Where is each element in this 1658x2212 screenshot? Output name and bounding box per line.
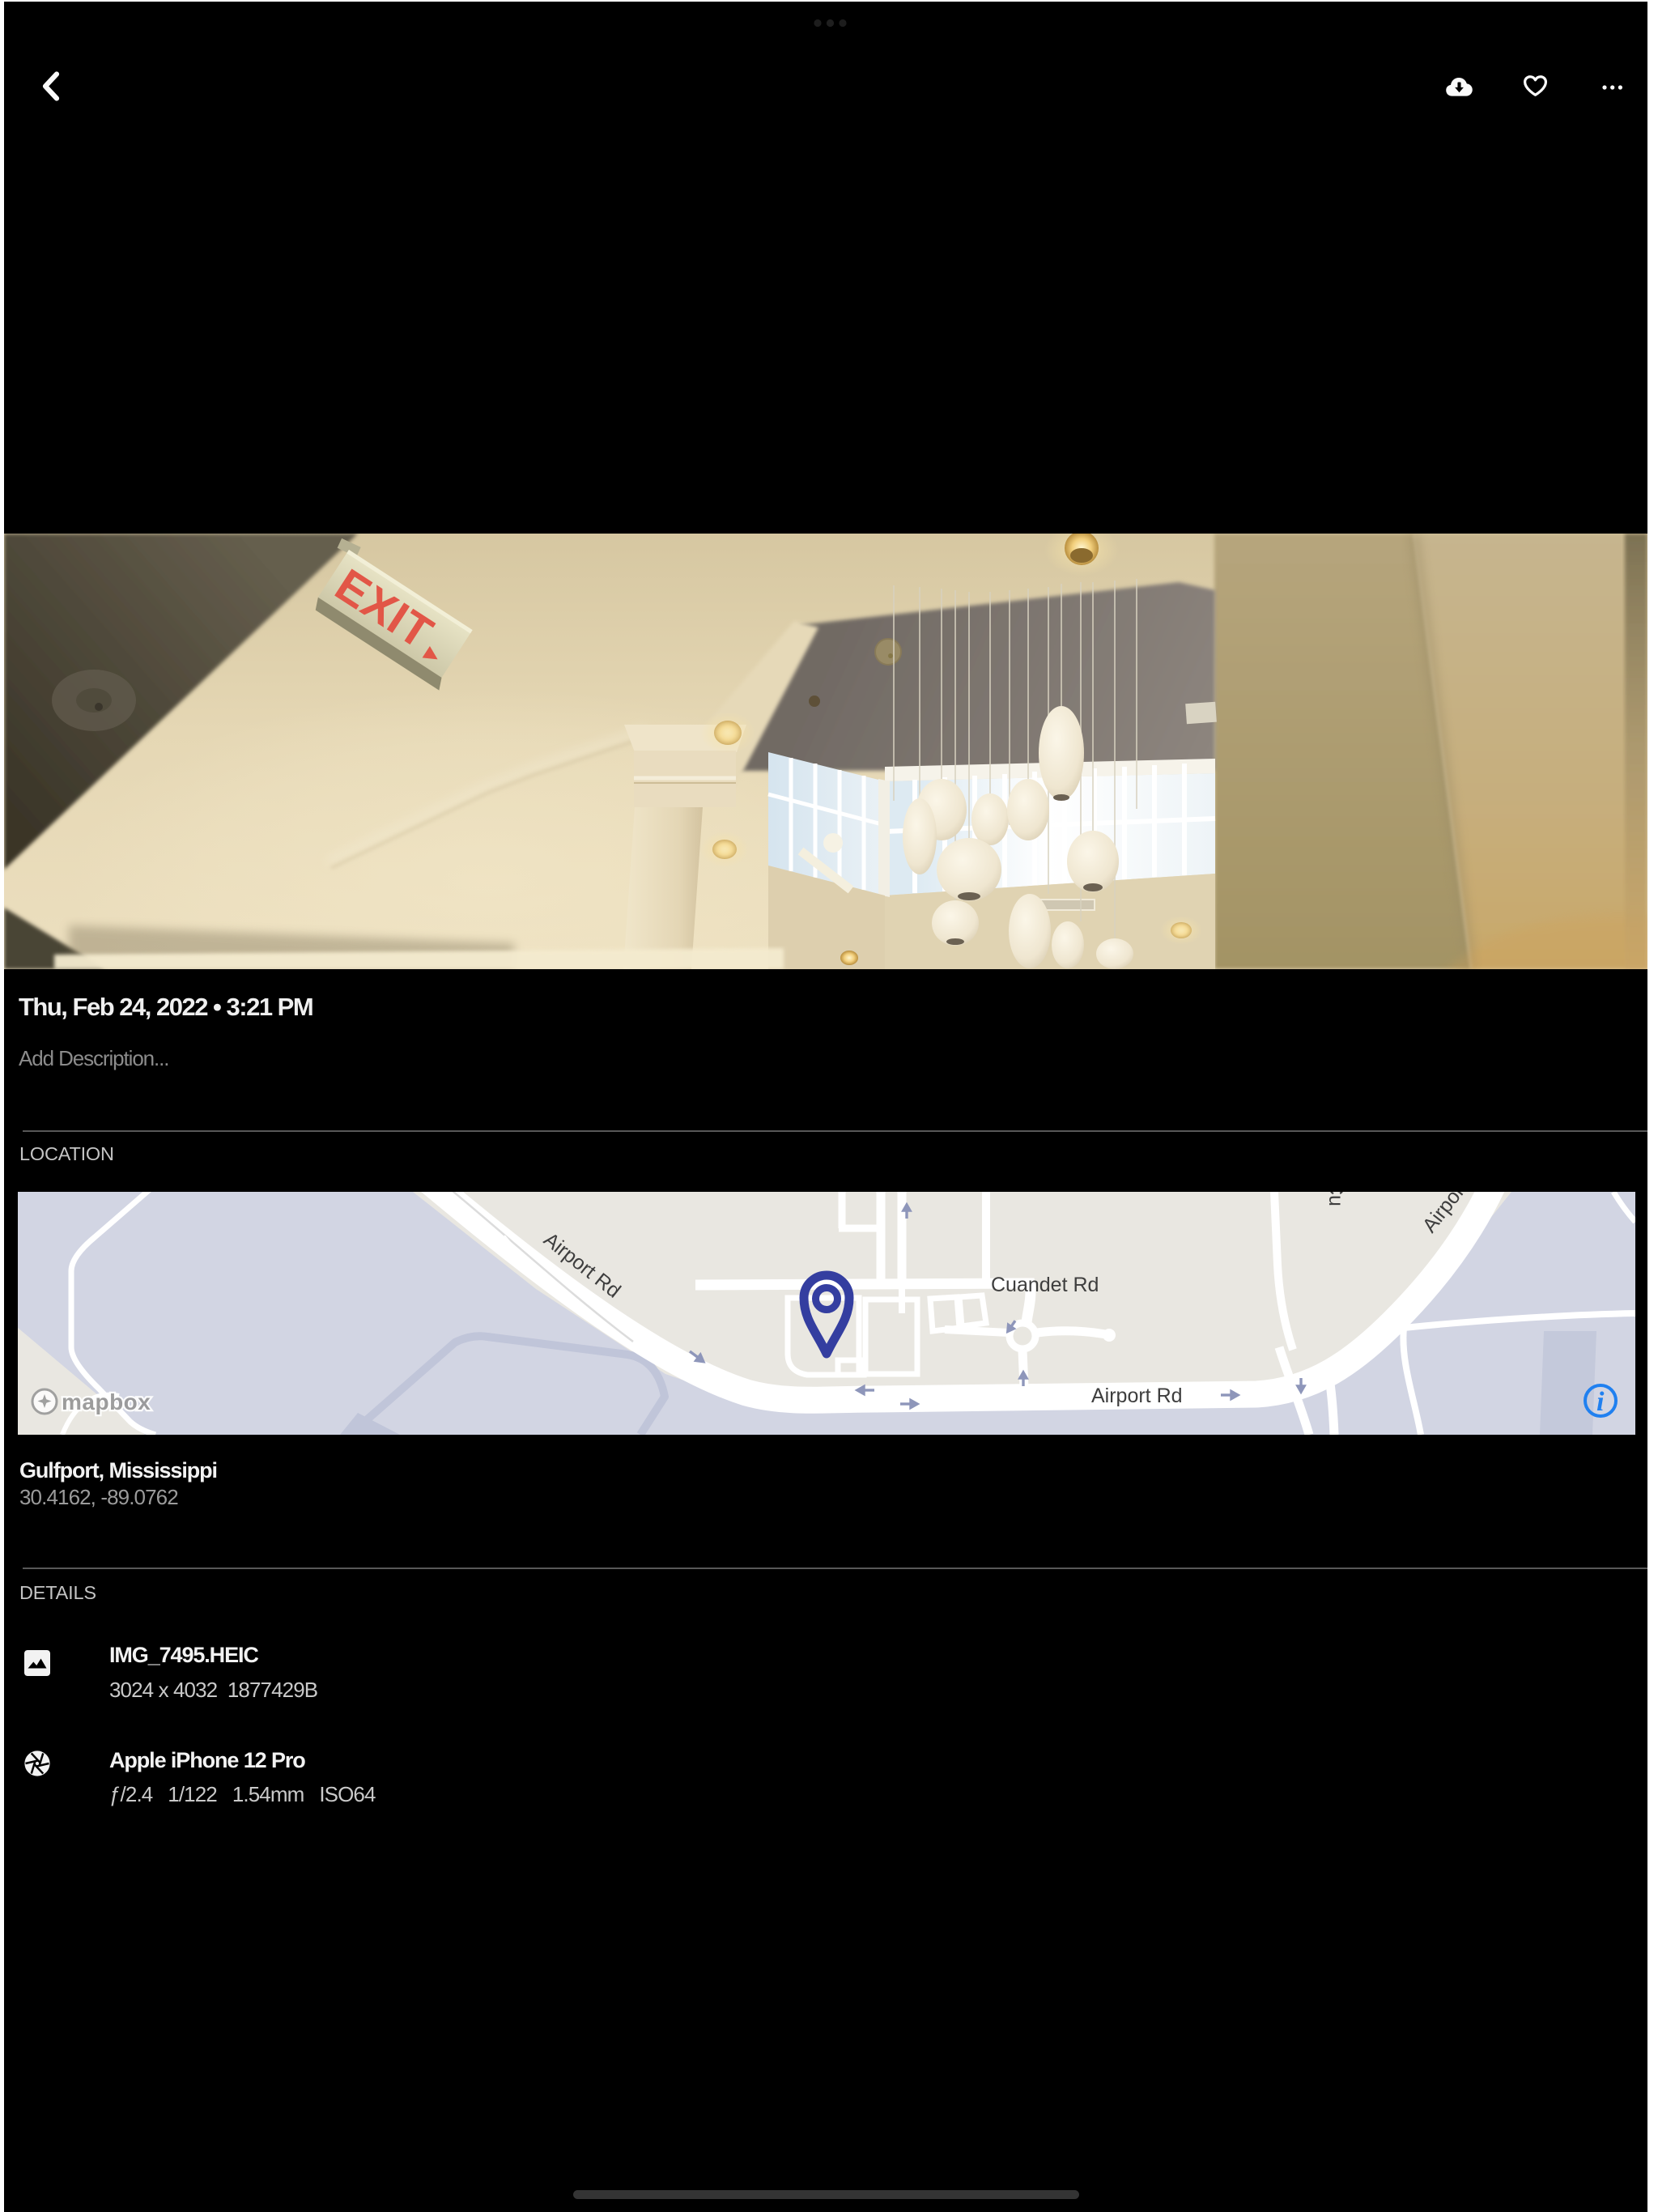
svg-text:i: i <box>1596 1387 1605 1417</box>
svg-text:Airport Rd: Airport Rd <box>1091 1385 1183 1407</box>
svg-text:Cu: Cu <box>1324 1192 1347 1206</box>
svg-text:mapbox: mapbox <box>62 1389 151 1414</box>
svg-text:Cuandet Rd: Cuandet Rd <box>991 1274 1099 1296</box>
